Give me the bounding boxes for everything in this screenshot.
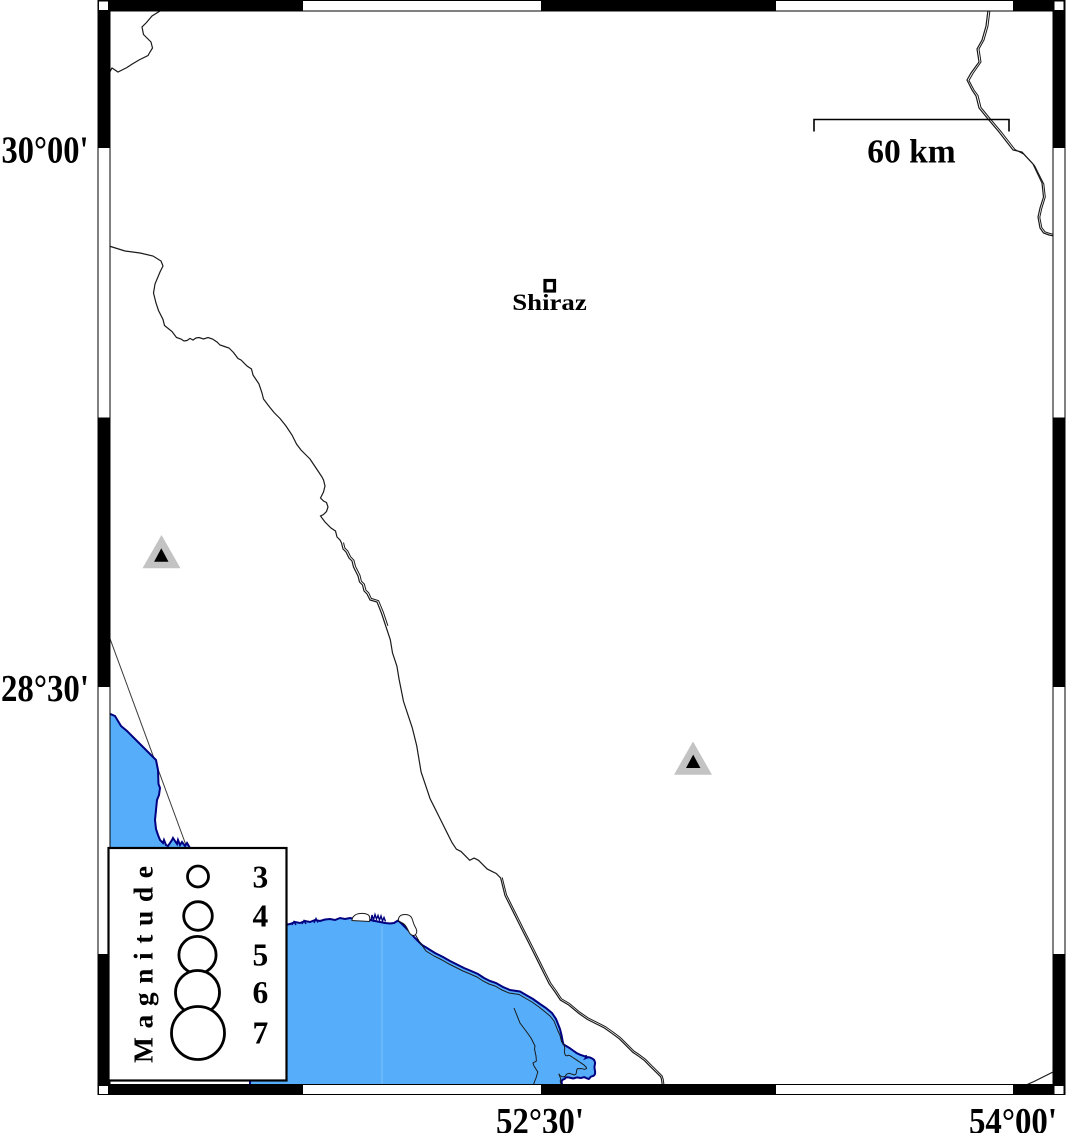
svg-text:3: 3 [253,860,269,895]
svg-text:28°30': 28°30' [1,668,89,710]
svg-text:6: 6 [253,975,269,1010]
svg-text:5: 5 [253,938,269,973]
svg-text:54°00': 54°00' [969,1102,1057,1133]
svg-text:52°30': 52°30' [496,1102,584,1133]
svg-text:30°00': 30°00' [2,130,89,172]
svg-text:4: 4 [253,899,269,934]
svg-text:7: 7 [253,1016,269,1051]
svg-text:Shiraz: Shiraz [512,290,587,315]
svg-text:60 km: 60 km [867,134,956,171]
